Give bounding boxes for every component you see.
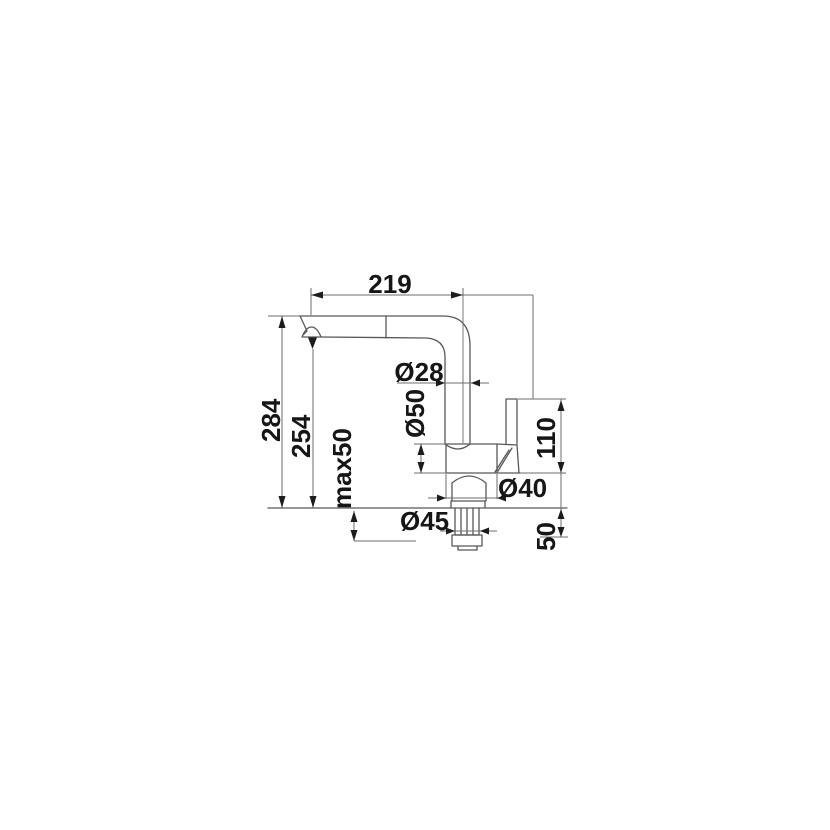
dim-spout-reach-label: 219 xyxy=(368,269,411,299)
spout-nose xyxy=(300,316,307,335)
dim-lever-height-label: 110 xyxy=(531,417,561,459)
flow-direction-arrow xyxy=(308,338,317,350)
dimension-labels: 219 Ø28 284 254 max50 Ø50 Ø40 Ø45 110 50 xyxy=(256,269,561,551)
base-neck xyxy=(452,476,486,501)
lever-handle-stick xyxy=(506,399,517,444)
dim-spout-pipe-diameter-label: Ø28 xyxy=(394,357,443,387)
technical-drawing-page: 219 Ø28 284 254 max50 Ø50 Ø40 Ø45 110 50 xyxy=(0,0,830,830)
dim-outlet-height-label: 254 xyxy=(286,414,316,458)
aerator-outlet xyxy=(302,327,321,337)
faucet-technical-drawing: 219 Ø28 284 254 max50 Ø50 Ø40 Ø45 110 50 xyxy=(0,0,830,830)
dim-under-deck-length-label: 50 xyxy=(531,522,561,551)
dim-body-diameter-label: Ø50 xyxy=(400,389,430,438)
dim-max-deck-thickness-label: max50 xyxy=(327,428,357,509)
dim-total-height-label: 284 xyxy=(256,398,286,442)
dim-stem-diameter-label: Ø45 xyxy=(400,506,449,536)
mounting-nut xyxy=(452,535,482,550)
base-flange xyxy=(451,501,485,508)
lever-cap xyxy=(495,444,519,473)
riser-body-fillet xyxy=(445,444,470,449)
dim-base-diameter-label: Ø40 xyxy=(498,473,547,503)
